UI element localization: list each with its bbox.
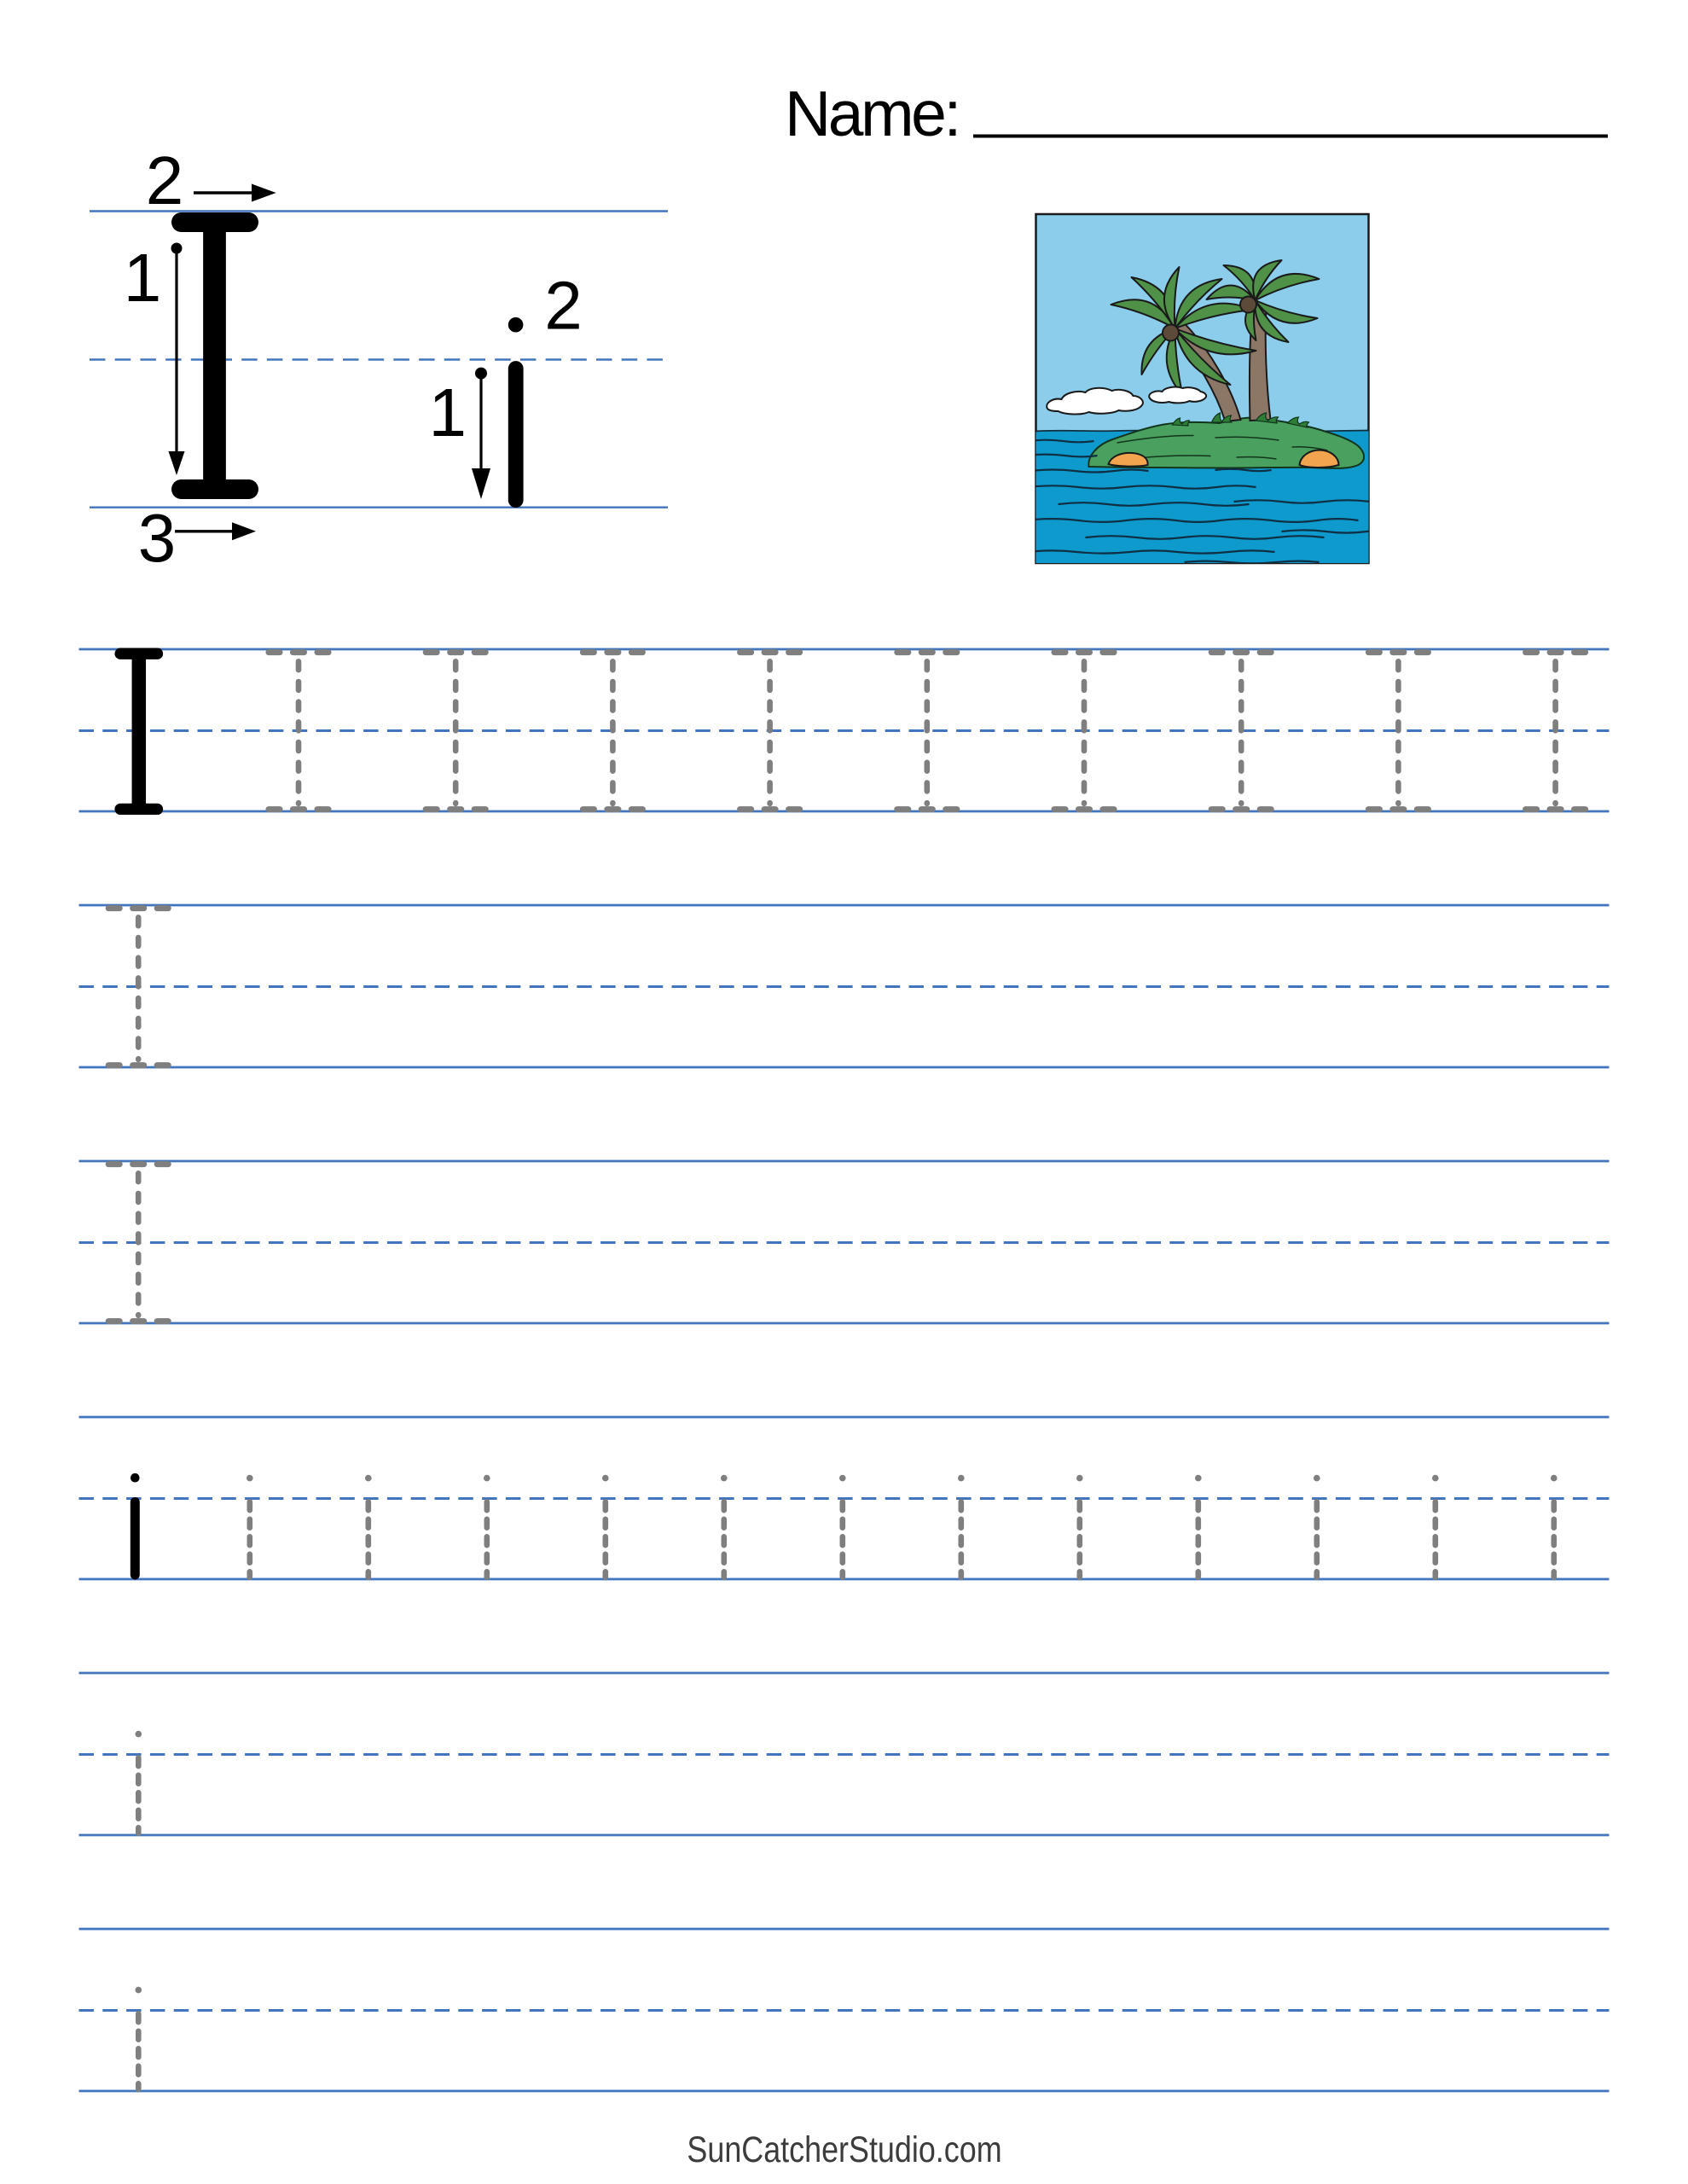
svg-text:1: 1 [124,240,162,316]
svg-text:2: 2 [146,142,184,218]
svg-text:1: 1 [428,375,467,450]
svg-text:SunCatcherStudio.com: SunCatcherStudio.com [687,2129,1001,2170]
svg-text:Name:: Name: [785,78,959,149]
svg-text:3: 3 [138,500,177,576]
svg-text:2: 2 [544,267,583,343]
